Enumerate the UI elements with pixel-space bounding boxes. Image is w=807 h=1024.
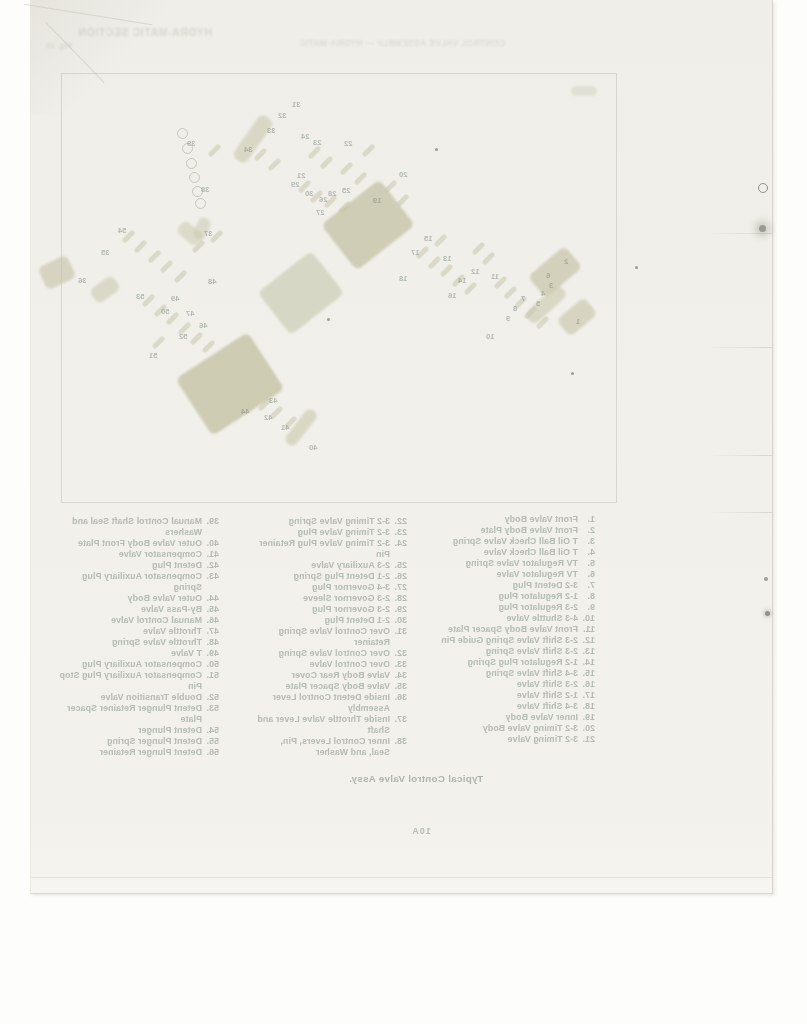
diagram-part-label: 26 — [319, 195, 327, 204]
diagram-part-label: 21 — [297, 171, 305, 180]
diagram-part-label: 29 — [291, 180, 299, 189]
diagram-part-label: 38 — [201, 185, 209, 194]
diagram-part-label: 42 — [264, 413, 272, 422]
diagram-part-label: 14 — [458, 276, 466, 285]
diagram-check-ball-ring — [189, 172, 200, 183]
scanned-page: HYDRA-MATIC SECTION Fig. 10 CONTROL VALV… — [0, 0, 807, 1024]
diagram-part-label: 54 — [118, 226, 126, 235]
diagram-part-label: 43 — [269, 396, 277, 405]
diagram-part-label: 49 — [171, 294, 179, 303]
diagram-part-label: 18 — [399, 274, 407, 283]
binder-mark — [758, 183, 768, 193]
diagram-part-label: 2 — [564, 257, 568, 266]
diagram-part-label: 6 — [546, 271, 550, 280]
binder-mark — [759, 225, 766, 232]
diagram-part-label: 5 — [536, 299, 540, 308]
diagram-part-label: 40 — [309, 443, 317, 452]
diagram-part-label: 52 — [179, 332, 187, 341]
paper-sheet: HYDRA-MATIC SECTION Fig. 10 CONTROL VALV… — [30, 0, 773, 894]
diagram-part-label: 31 — [292, 100, 300, 109]
diagram-part-label: 16 — [448, 291, 456, 300]
diagram-part-label: 19 — [373, 196, 381, 205]
diagram-part-label: 46 — [199, 321, 207, 330]
binder-mark — [765, 611, 770, 616]
diagram-part-label: 33 — [267, 126, 275, 135]
diagram-part-label: 7 — [521, 294, 525, 303]
diagram-part-label: 48 — [208, 277, 216, 286]
paper-speck — [435, 148, 438, 151]
diagram-part-label: 25 — [342, 186, 350, 195]
diagram-part-label: 8 — [513, 304, 517, 313]
diagram-part-label: 15 — [424, 234, 432, 243]
diagram-part-label: 28 — [328, 189, 336, 198]
diagram-part-label: 51 — [149, 351, 157, 360]
diagram-part-label: 41 — [281, 423, 289, 432]
diagram-part-label: 10 — [486, 332, 494, 341]
diagram-part-label: 32 — [278, 111, 286, 120]
diagram-part-label: 20 — [399, 170, 407, 179]
paper-speck — [327, 318, 330, 321]
diagram-part-label: 44 — [241, 407, 249, 416]
diagram-part-label: 12 — [471, 267, 479, 276]
diagram-part-label: 22 — [344, 139, 352, 148]
diagram-part-label: 53 — [136, 292, 144, 301]
paper-speck — [571, 372, 574, 375]
diagram-part-label: 50 — [161, 307, 169, 316]
diagram-part-label: 9 — [506, 314, 510, 323]
diagram-part-label: 23 — [313, 138, 321, 147]
diagram-check-ball-ring — [186, 158, 197, 169]
diagram-part-label: 4 — [541, 289, 545, 298]
diagram-part-label: 35 — [101, 248, 109, 257]
diagram-part-label: 17 — [411, 248, 419, 257]
paper-speck — [635, 266, 638, 269]
diagram-part-label: 30 — [305, 189, 313, 198]
diagram-part-label: 34 — [244, 145, 252, 154]
diagram-part-shape — [571, 86, 597, 96]
exploded-parts-diagram: 3132333422232421201925262728293038393736… — [31, 0, 772, 893]
diagram-part-label: 47 — [186, 309, 194, 318]
diagram-part-label: 39 — [187, 139, 195, 148]
diagram-part-label: 27 — [316, 208, 324, 217]
diagram-part-label: 13 — [443, 254, 451, 263]
diagram-check-ball-ring — [195, 198, 206, 209]
diagram-part-label: 37 — [204, 229, 212, 238]
binder-mark — [764, 577, 768, 581]
diagram-check-ball-ring — [177, 128, 188, 139]
diagram-part-label: 1 — [576, 317, 580, 326]
diagram-part-label: 24 — [301, 132, 309, 141]
diagram-part-label: 11 — [491, 272, 499, 281]
diagram-part-label: 3 — [549, 281, 553, 290]
diagram-part-label: 36 — [78, 276, 86, 285]
